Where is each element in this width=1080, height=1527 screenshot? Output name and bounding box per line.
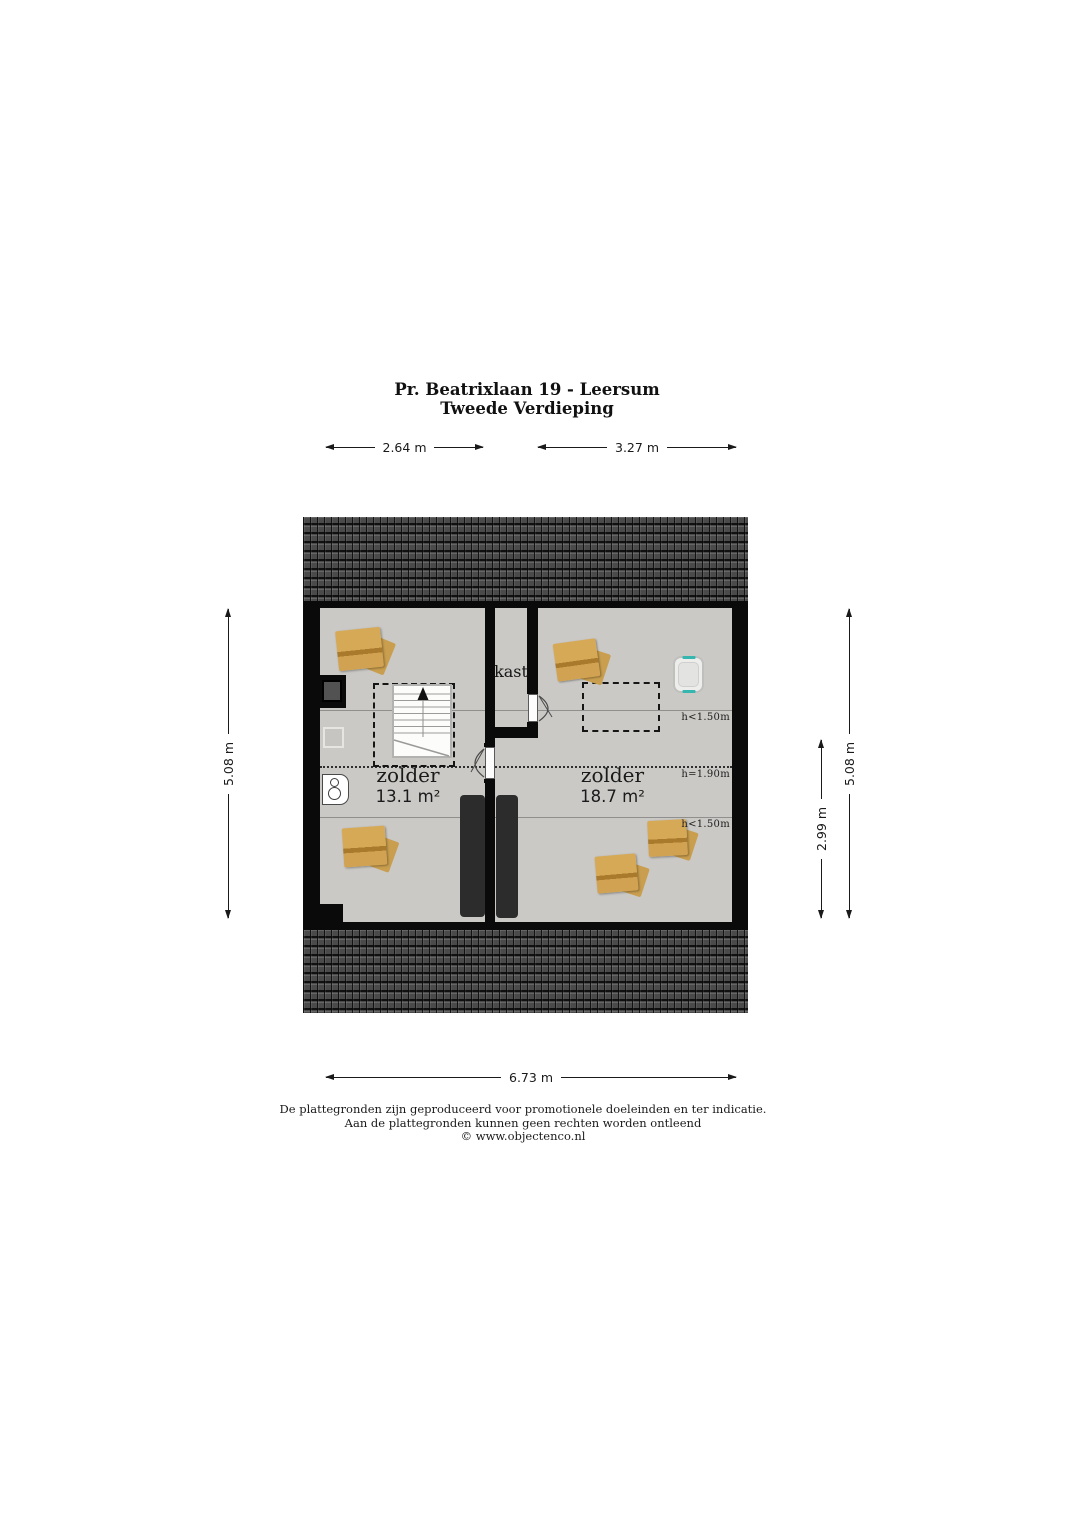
arrow-up-icon xyxy=(846,608,852,617)
basket-handle-icon xyxy=(682,656,695,659)
room-area: 13.1 m² xyxy=(338,786,478,808)
staircase xyxy=(392,684,452,758)
disclaimer-line: Aan de plattegronden kunnen geen rechten… xyxy=(0,1117,1046,1131)
basket-handle-icon xyxy=(682,690,695,693)
arrow-left-icon xyxy=(537,444,546,450)
copyright-line: © www.objectenco.nl xyxy=(0,1130,1046,1144)
page-title: Pr. Beatrixlaan 19 - Leersum Tweede Verd… xyxy=(0,380,1054,418)
arrow-left-icon xyxy=(325,444,334,450)
mattress-right xyxy=(496,795,518,918)
room-name: zolder xyxy=(338,764,478,786)
arrow-up-icon xyxy=(225,608,231,617)
dimension-right-inner: 2.99 m xyxy=(815,739,829,919)
roof-tiles-bottom xyxy=(303,930,748,1013)
dimension-right-outer: 5.08 m xyxy=(843,608,857,919)
room-name: zolder xyxy=(540,764,685,786)
height-marker-label: h<1.50m xyxy=(640,712,730,723)
dimension-left: 5.08 m xyxy=(222,608,236,919)
room-label-right: zolder 18.7 m² xyxy=(540,764,685,808)
disclaimer: De plattegronden zijn geproduceerd voor … xyxy=(0,1103,1046,1144)
disclaimer-line: De plattegronden zijn geproduceerd voor … xyxy=(0,1103,1046,1117)
wall-top xyxy=(303,601,748,608)
dimension-bottom: 6.73 m xyxy=(325,1071,737,1085)
arrow-right-icon xyxy=(728,1074,737,1080)
title-floor: Tweede Verdieping xyxy=(0,399,1054,418)
dimension-label: 5.08 m xyxy=(843,734,857,794)
wall-right xyxy=(732,601,748,930)
dimension-label: 5.08 m xyxy=(222,734,236,794)
gray-cabinet xyxy=(323,727,344,748)
storage-boxes xyxy=(342,826,388,868)
closet-door xyxy=(528,694,538,722)
closet-label: kast xyxy=(481,662,541,681)
dimension-label: 6.73 m xyxy=(501,1071,561,1085)
storage-boxes xyxy=(594,853,638,893)
dimension-label: 2.99 m xyxy=(815,799,829,859)
arrow-left-icon xyxy=(325,1074,334,1080)
chimney xyxy=(322,680,342,702)
roof-window-outline xyxy=(582,682,660,732)
arrow-right-icon xyxy=(728,444,737,450)
storage-boxes xyxy=(335,627,384,671)
dimension-label: 2.64 m xyxy=(375,441,435,455)
wall-left xyxy=(303,601,320,930)
dimension-label: 3.27 m xyxy=(607,441,667,455)
stair-treads xyxy=(394,688,450,738)
laundry-basket xyxy=(673,656,704,693)
wall-closet-bottom xyxy=(485,727,538,738)
dimension-top-left: 2.64 m xyxy=(325,441,484,455)
arrow-right-icon xyxy=(475,444,484,450)
storage-boxes xyxy=(553,638,601,682)
arrow-down-icon xyxy=(225,910,231,919)
arrow-down-icon xyxy=(846,910,852,919)
wall-stub-bottom-left xyxy=(320,904,343,930)
arrow-up-icon xyxy=(818,739,824,748)
door-cap xyxy=(484,779,495,783)
room-label-left: zolder 13.1 m² xyxy=(338,764,478,808)
roof-tiles-top xyxy=(303,517,748,601)
door-cap xyxy=(527,722,538,726)
height-line-3 xyxy=(320,817,732,818)
title-address: Pr. Beatrixlaan 19 - Leersum xyxy=(0,380,1054,399)
room-door xyxy=(485,747,495,779)
floorplan-page: Pr. Beatrixlaan 19 - Leersum Tweede Verd… xyxy=(0,0,1080,1527)
wall-bottom xyxy=(303,922,748,930)
mattress-left xyxy=(460,795,485,917)
dimension-top-right: 3.27 m xyxy=(537,441,737,455)
height-marker-label: h<1.50m xyxy=(640,819,730,830)
room-area: 18.7 m² xyxy=(540,786,685,808)
arrow-down-icon xyxy=(818,910,824,919)
wall-divider-lower xyxy=(485,781,495,922)
basket-inner xyxy=(678,662,699,687)
